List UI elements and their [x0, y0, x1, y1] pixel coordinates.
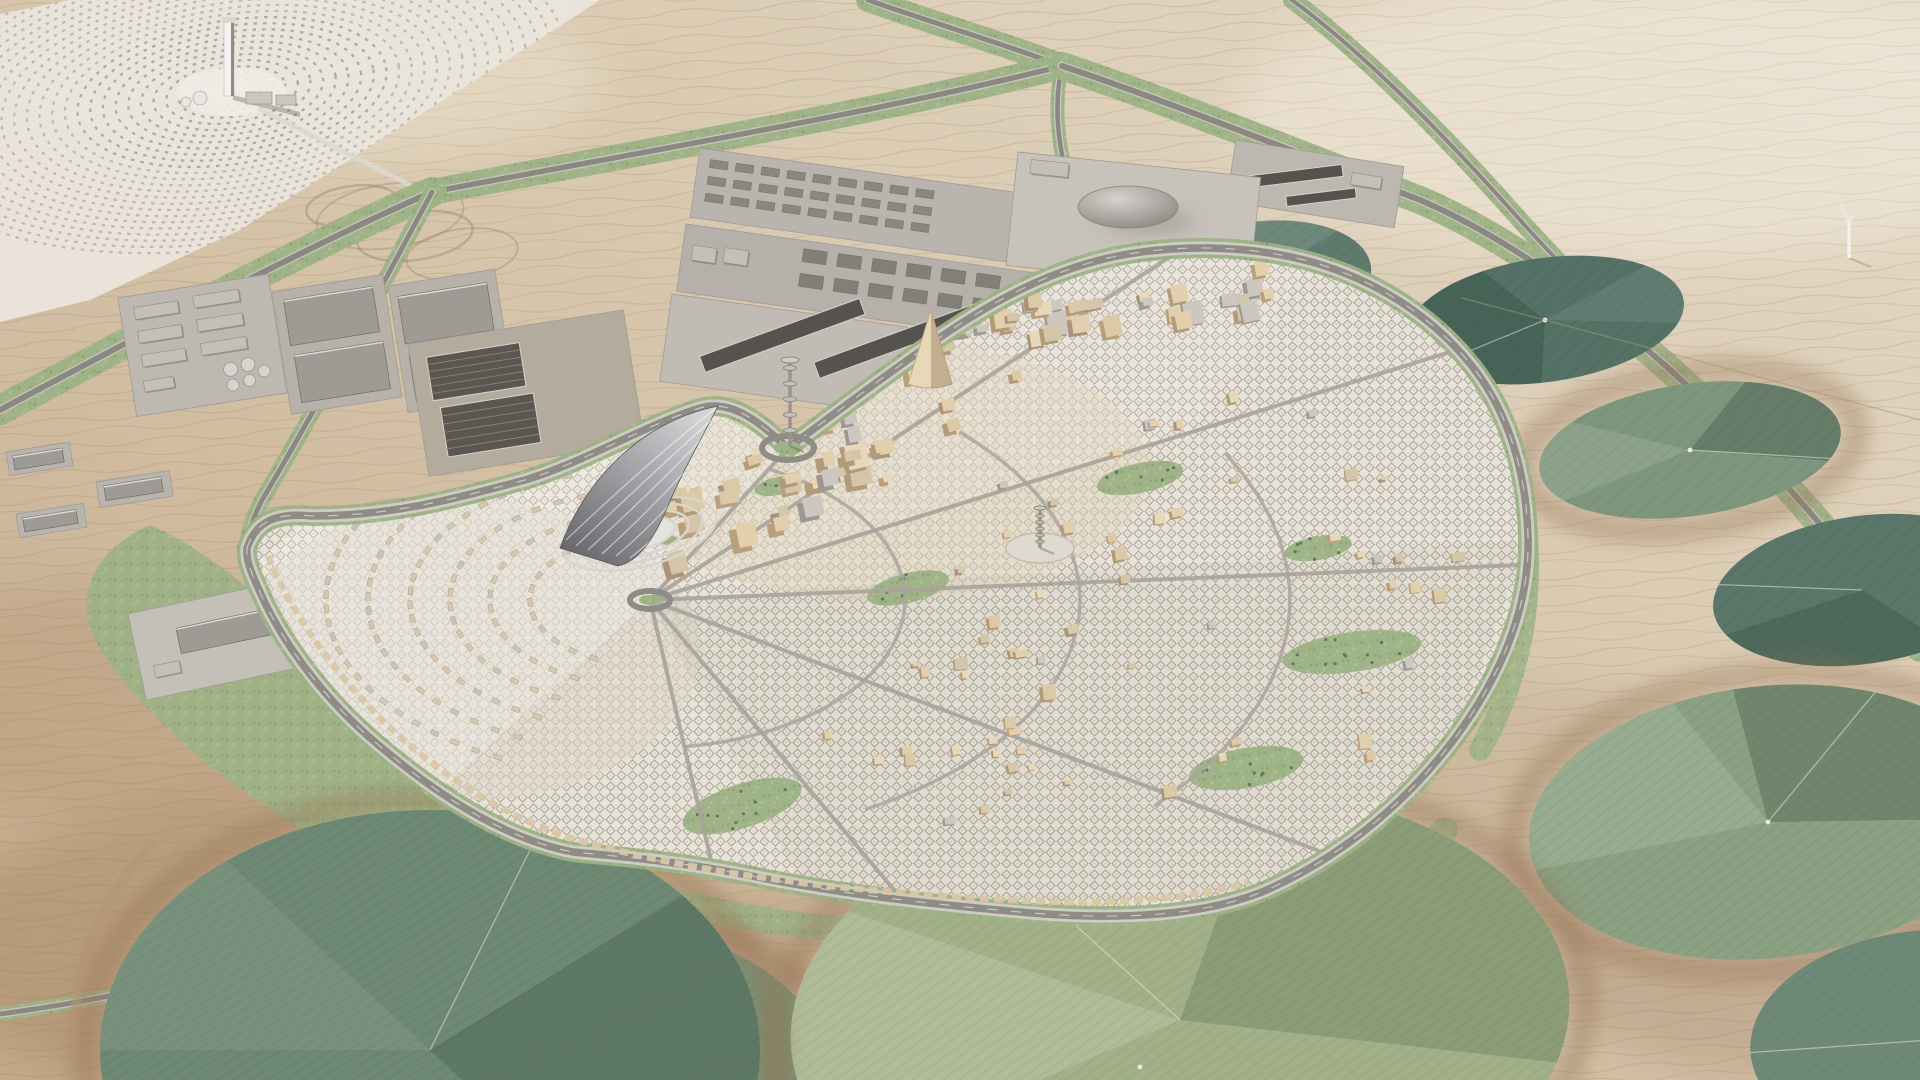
building-top: [905, 754, 915, 766]
park-tree: [904, 573, 907, 576]
building-top: [1042, 684, 1056, 701]
building-top: [999, 481, 1008, 489]
park-tree: [881, 598, 884, 601]
building-bar: [691, 245, 717, 263]
park-tree: [1313, 558, 1316, 561]
park-tree: [1324, 663, 1327, 666]
building-top: [1149, 421, 1159, 427]
plant-tank: [193, 91, 207, 105]
oldtown-block: [408, 600, 413, 608]
building-top: [1263, 288, 1274, 300]
building-top: [1219, 752, 1227, 761]
park-tree: [1380, 641, 1383, 644]
park-tree: [784, 788, 787, 791]
oldtown-block: [408, 587, 413, 596]
building-top: [1120, 574, 1130, 583]
building-top: [1434, 588, 1447, 603]
park-tree: [1139, 475, 1142, 478]
oldtown-block: [488, 590, 493, 599]
building-top: [993, 749, 1001, 757]
oldtown-block: [324, 590, 329, 598]
oldtown-block: [366, 606, 371, 614]
park-tree: [1248, 783, 1251, 786]
building-top: [1410, 581, 1421, 593]
oldtown-block: [366, 592, 371, 600]
building-top: [1154, 512, 1165, 524]
plant-building: [276, 95, 296, 105]
building: [1357, 733, 1372, 750]
building-top: [1038, 656, 1046, 664]
building-top: [1163, 784, 1178, 798]
building-top: [1065, 779, 1073, 784]
building: [903, 754, 915, 767]
pivot-hub: [1766, 820, 1771, 825]
park-tree: [1370, 661, 1373, 664]
building-top: [981, 805, 990, 814]
building-top: [1063, 521, 1077, 534]
building-top: [802, 495, 825, 518]
building-top: [1452, 552, 1467, 562]
observation-tower-disc: [1036, 514, 1045, 517]
building-top: [1007, 313, 1020, 322]
roundabout-island: [639, 595, 661, 605]
building-top: [1050, 498, 1060, 506]
building-top: [954, 657, 968, 670]
park-tree: [754, 812, 757, 815]
oldtown-block: [448, 588, 453, 597]
park-tree: [1366, 653, 1369, 656]
building-top: [957, 566, 965, 573]
building-top: [988, 615, 1001, 629]
building-top: [1071, 314, 1092, 334]
building-top: [1231, 476, 1240, 482]
building-top: [945, 817, 957, 825]
roundabout-island: [774, 441, 803, 454]
building-top: [1174, 310, 1193, 330]
building-top: [902, 745, 913, 755]
building-top: [980, 634, 990, 643]
park-tree: [1296, 543, 1299, 546]
observation-tower-disc: [1036, 540, 1045, 543]
building-top: [1114, 545, 1128, 560]
solar-tower-cap: [222, 17, 236, 23]
park-tree: [775, 484, 778, 487]
building-top: [1389, 580, 1397, 589]
park-tree: [1299, 542, 1302, 545]
building-top: [989, 737, 998, 744]
park-tree: [754, 801, 757, 804]
building: [1152, 512, 1165, 526]
solar-tower-side: [231, 22, 234, 96]
west-industrial-b: [272, 274, 402, 414]
building-top: [1011, 370, 1022, 381]
park-tree: [1260, 773, 1263, 776]
building: [1408, 581, 1421, 594]
building: [953, 657, 969, 671]
building-top: [1222, 293, 1239, 307]
pivot-machine: [1138, 1065, 1143, 1070]
park-tree: [1308, 537, 1311, 540]
building: [1106, 533, 1117, 544]
park-tree: [1205, 769, 1208, 772]
building-top: [962, 670, 969, 678]
park-tree: [706, 814, 709, 817]
building-top: [1107, 533, 1117, 542]
plant-tank: [181, 97, 191, 107]
building: [1003, 717, 1016, 730]
building-top: [1395, 553, 1404, 562]
park-tree: [716, 815, 719, 818]
park-tree: [731, 827, 734, 830]
observation-tower-top: [1034, 506, 1046, 510]
building-top: [1005, 717, 1016, 729]
masterplan-render: [0, 0, 1920, 1080]
building-top: [1308, 409, 1317, 417]
park-tree: [1334, 662, 1337, 665]
observation-tower-disc: [784, 381, 797, 386]
observation-tower-top: [781, 357, 799, 363]
building-top: [1128, 663, 1135, 669]
observation-tower-disc: [1036, 527, 1045, 530]
park-tree: [1161, 478, 1164, 481]
building-top: [1366, 751, 1376, 760]
park-tree: [1115, 471, 1118, 474]
plant-building: [246, 92, 272, 104]
building: [1344, 468, 1359, 482]
park-tree: [1296, 653, 1299, 656]
observation-tower-disc: [784, 365, 797, 370]
park-tree: [1294, 550, 1297, 553]
building-top: [1345, 468, 1358, 481]
building-top: [952, 745, 961, 755]
park-tree: [1166, 468, 1169, 471]
observation-tower-disc: [784, 428, 797, 433]
pivot-hub: [1688, 448, 1693, 453]
building-top: [1359, 733, 1372, 749]
park-tree: [1249, 762, 1252, 765]
park-tree: [1324, 638, 1327, 641]
park-tree: [1291, 662, 1294, 665]
oldtown-block: [528, 598, 533, 606]
building: [1160, 784, 1178, 800]
park-tree: [1105, 476, 1108, 479]
observation-tower-disc: [1036, 534, 1045, 537]
park-tree: [1290, 766, 1293, 769]
building-top: [1028, 763, 1036, 770]
building-top: [1374, 555, 1384, 563]
building: [1219, 293, 1239, 309]
park-tree: [764, 483, 767, 486]
oldtown-block: [448, 602, 453, 610]
observation-tower-disc: [784, 412, 797, 417]
building: [1450, 552, 1466, 563]
park-tree: [1333, 638, 1336, 641]
building-top: [847, 425, 862, 443]
park-tree: [1172, 466, 1175, 469]
building-top: [1176, 419, 1184, 428]
park-tree: [739, 790, 742, 793]
park-tree: [1253, 771, 1256, 774]
dome-roof: [1078, 186, 1178, 228]
building-top: [1017, 746, 1027, 754]
building-top: [941, 398, 956, 412]
park-tree: [734, 821, 737, 824]
park-tree: [1398, 652, 1401, 655]
building-bar: [723, 248, 749, 266]
building-top: [1208, 621, 1216, 629]
west-industrial-a: [118, 274, 287, 416]
observation-tower-disc: [784, 397, 797, 402]
park-tree: [1344, 655, 1347, 658]
oldtown-block: [324, 605, 329, 613]
building-top: [1005, 789, 1013, 795]
observation-tower-disc: [1036, 521, 1045, 524]
building-top: [824, 731, 833, 739]
park-tree: [1337, 551, 1340, 554]
building-top: [921, 666, 931, 678]
building-top: [1043, 323, 1063, 342]
masterplan-svg: [0, 0, 1920, 1080]
park-tree: [742, 812, 745, 815]
building-top: [874, 756, 884, 764]
